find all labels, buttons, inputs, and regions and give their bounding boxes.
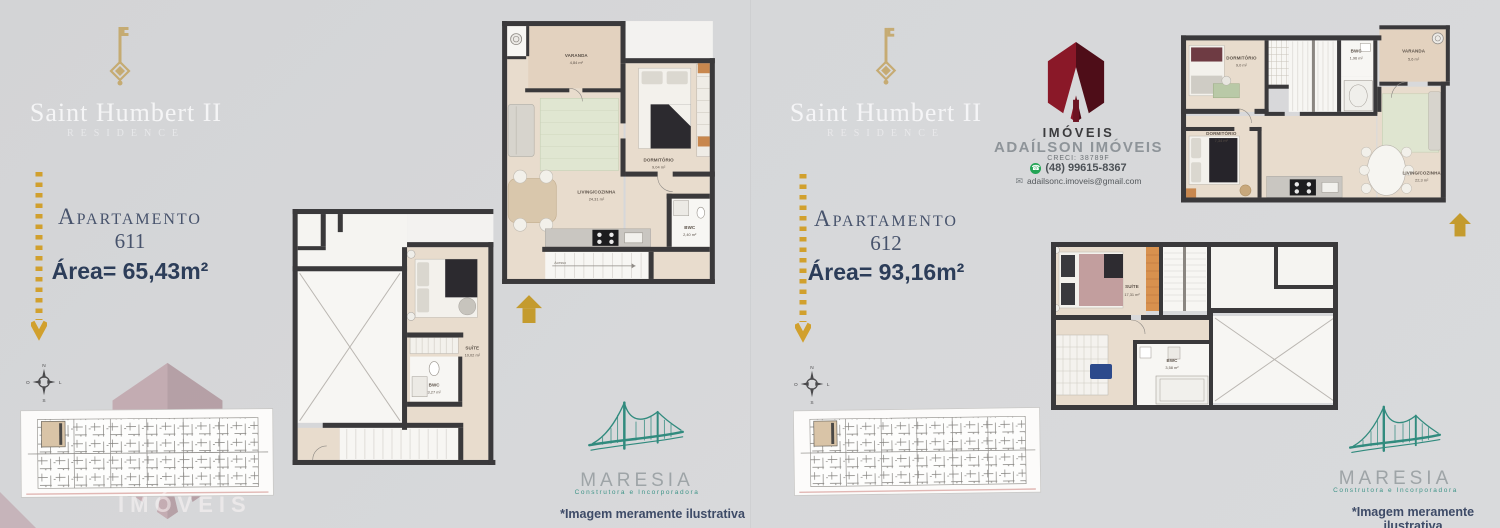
floorplan-611-lower: SUÍTE 10,02 m² BWC 3,27 m² <box>282 204 506 470</box>
svg-text:LIVING/COZINHA: LIVING/COZINHA <box>1403 170 1442 175</box>
maresia-tagline: Construtora e Incorporadora <box>572 489 702 496</box>
desk <box>1213 84 1239 98</box>
svg-text:SUÍTE: SUÍTE <box>1125 282 1139 289</box>
dashed-arrow-down-icon <box>31 170 47 342</box>
shower <box>674 201 689 216</box>
svg-text:22,3 m²: 22,3 m² <box>1415 177 1429 182</box>
cooktop <box>592 230 618 246</box>
realtor-phone-row: ☎ (48) 99615-8367 <box>1001 162 1156 174</box>
compass-icon: N L S O <box>793 362 831 406</box>
sofa <box>508 104 534 156</box>
watermark-text: IMÓVEIS <box>118 492 252 518</box>
toilet <box>429 362 439 376</box>
realtor-phone: (48) 99615-8367 <box>1045 162 1126 174</box>
brand-title: Saint Humbert II <box>0 98 252 128</box>
dining-table <box>1367 145 1405 195</box>
svg-text:O: O <box>26 380 30 386</box>
svg-text:Acesso: Acesso <box>554 261 566 265</box>
svg-text:9,04 m²: 9,04 m² <box>652 165 666 170</box>
svg-text:SUÍTE: SUÍTE <box>465 344 479 351</box>
flyer-canvas: Saint Humbert II RESIDENCE Apartamento 6… <box>0 0 1500 528</box>
realtor-house-logo-icon <box>1039 40 1113 124</box>
floorplan-611-upper: Acesso VARANDA 4,84 m² DORMI <box>500 6 736 292</box>
svg-text:3,27 m²: 3,27 m² <box>428 390 442 395</box>
maresia-tagline: Construtora e Incorporadora <box>1333 487 1458 494</box>
disclaimer: *Imagem meramente ilustrativa <box>1323 505 1500 528</box>
sofa <box>1429 92 1441 150</box>
panel-apartment-612: Saint Humbert II RESIDENCE Apartamento 6… <box>750 0 1500 528</box>
svg-text:VARANDA: VARANDA <box>565 53 589 58</box>
svg-text:DORMITÓRIO: DORMITÓRIO <box>1226 54 1257 61</box>
floorplan-612-lower: SUÍTE 17,31 m² BWC 3,58 m² <box>1046 240 1341 415</box>
sink <box>1322 182 1338 192</box>
svg-text:5,6 m²: 5,6 m² <box>1408 57 1420 62</box>
svg-text:9,0 m²: 9,0 m² <box>1236 63 1248 68</box>
bathtub <box>1156 376 1208 404</box>
building-floor-overview <box>792 400 1043 501</box>
email-icon: ✉ <box>1016 177 1024 186</box>
svg-text:7,34 m²: 7,34 m² <box>1215 138 1229 143</box>
dining-table <box>508 179 556 223</box>
realtor-email: adailsonc.imoveis@gmail.com <box>1027 176 1141 186</box>
realtor-creci: CRECI: 38789F <box>1001 155 1156 162</box>
brand-title: Saint Humbert II <box>761 98 1011 128</box>
up-arrow-icon <box>516 295 542 325</box>
toilet <box>697 207 705 218</box>
apartment-number: 612 <box>776 231 996 256</box>
brand-subtitle: RESIDENCE <box>761 128 1011 139</box>
key-icon <box>871 25 901 87</box>
svg-text:L: L <box>827 382 830 388</box>
sink <box>1140 347 1151 358</box>
washer <box>1432 33 1443 44</box>
svg-text:1,96 m²: 1,96 m² <box>1350 56 1364 61</box>
building-floor-overview <box>20 403 277 502</box>
realtor-email-row: ✉ adailsonc.imoveis@gmail.com <box>1001 176 1156 186</box>
apartment-label: Apartamento <box>776 206 996 232</box>
apartment-label: Apartamento <box>20 204 240 230</box>
svg-text:2,40 m²: 2,40 m² <box>683 232 697 237</box>
svg-text:3,58 m²: 3,58 m² <box>1165 365 1179 370</box>
svg-text:10,02 m²: 10,02 m² <box>465 353 481 358</box>
rug <box>1090 364 1112 379</box>
key-icon <box>104 24 136 88</box>
cooktop <box>1290 179 1316 195</box>
svg-text:O: O <box>794 382 798 388</box>
svg-text:BWC: BWC <box>429 383 441 388</box>
svg-text:DORMITÓRIO: DORMITÓRIO <box>644 156 675 163</box>
compass-icon: N L S O <box>25 360 63 404</box>
svg-text:L: L <box>59 380 62 386</box>
svg-text:LIVING/COZINHA: LIVING/COZINHA <box>577 190 616 195</box>
brand-subtitle: RESIDENCE <box>0 128 252 139</box>
svg-text:BWC: BWC <box>684 225 696 230</box>
floorplan-612-upper: DORMITÓRIO 9,0 m² BWC 1,96 m² VARANDA 5,… <box>1179 23 1473 237</box>
svg-text:4,84 m²: 4,84 m² <box>570 60 584 65</box>
dashed-arrow-down-icon <box>795 172 811 344</box>
realtor-logo-caption: IMÓVEIS <box>1001 125 1156 140</box>
bathtub <box>1344 81 1372 111</box>
maresia-bridge-icon <box>586 392 686 470</box>
svg-text:S: S <box>42 398 45 404</box>
maresia-bridge-icon <box>1347 398 1443 470</box>
washer <box>511 34 522 45</box>
svg-text:N: N <box>810 365 814 371</box>
apartment-area: Área= 65,43m² <box>10 258 250 285</box>
sink <box>625 233 643 243</box>
panel-apartment-611: Saint Humbert II RESIDENCE Apartamento 6… <box>0 0 750 528</box>
whatsapp-icon: ☎ <box>1030 163 1041 174</box>
disclaimer: *Imagem meramente ilustrativa <box>560 507 745 521</box>
apartment-area: Área= 93,16m² <box>766 259 1006 286</box>
svg-text:VARANDA: VARANDA <box>1402 48 1426 53</box>
svg-text:N: N <box>42 363 46 369</box>
up-arrow-icon <box>1449 213 1471 238</box>
svg-text:BWC: BWC <box>1351 48 1363 53</box>
svg-text:17,31 m²: 17,31 m² <box>1124 292 1140 297</box>
apartment-number: 611 <box>20 229 240 254</box>
realtor-name: ADAÍLSON IMÓVEIS <box>991 139 1166 156</box>
svg-text:DORMITÓRIO: DORMITÓRIO <box>1206 129 1237 136</box>
shower <box>412 377 427 397</box>
svg-text:24,31 m²: 24,31 m² <box>589 197 605 202</box>
svg-text:BWC: BWC <box>1166 358 1178 363</box>
